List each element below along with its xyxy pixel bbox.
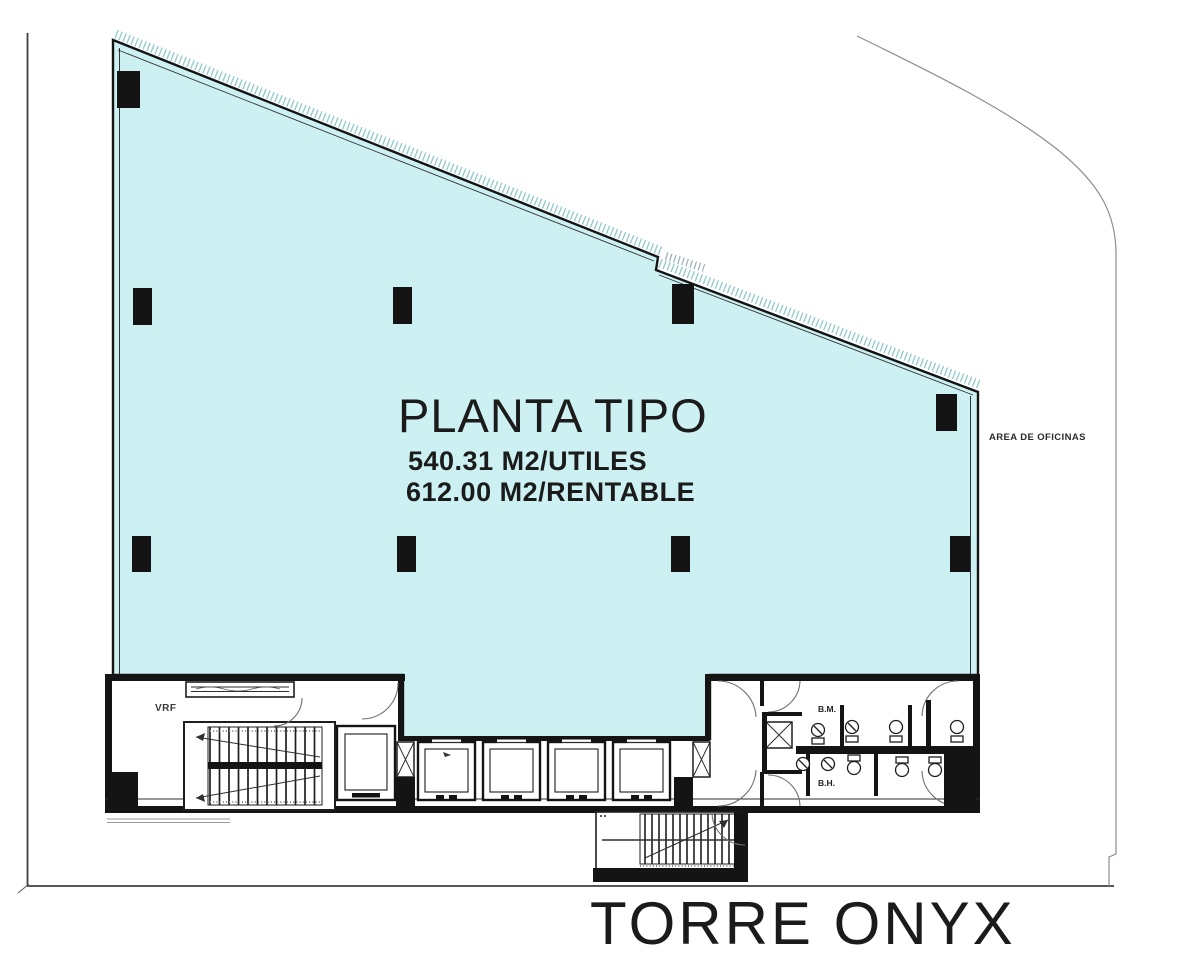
stall-partition [926,700,931,746]
door-swing [768,681,800,712]
core-column [108,772,138,813]
passenger-elevator-4 [613,740,670,801]
chase-wall [762,712,767,774]
service-shaft-solid [944,752,976,810]
toilet [848,762,861,775]
facade-hatch-notch [666,256,704,268]
door-mark [436,795,444,800]
elevator-car [345,734,387,790]
toilet [951,721,964,734]
toilet-tank [812,738,824,744]
stair-wall-right [734,812,748,882]
floor-plan-drawing: VRF [0,0,1200,972]
column [671,536,690,572]
vestibule-wall-upper [760,674,764,706]
lobby-wall-left [398,674,403,740]
toilet-tank [846,736,858,742]
elevator-door [352,793,380,798]
core-wall-top-right [707,674,980,681]
door-mark [501,795,509,800]
vestibule-wall-lower [760,772,764,812]
door-mark [449,795,457,800]
elevator-car [555,749,598,792]
plan-title: PLANTA TIPO [398,389,708,442]
lower-stair [593,812,748,882]
toilet [896,764,909,777]
column [393,287,412,324]
passenger-elevator-3 [548,740,605,801]
vrf-room: VRF [155,682,294,714]
duct-shaft-left [397,742,414,777]
toilet [890,721,903,734]
elevator-car [620,749,663,792]
column [132,536,151,572]
main-stair [184,698,335,810]
chase-wall-top [762,712,802,716]
bathroom-zone: B.M. B.H. [718,674,976,812]
toilet-tank [848,755,860,761]
plan-area-rentable: 612.00 M2/RENTABLE [406,477,695,507]
office-area-note: AREA DE OFICINAS [989,432,1086,443]
floor-plate [113,34,981,739]
stair-landing-wall [208,762,322,769]
column [133,288,152,325]
door-swing [718,681,756,717]
door-swing [362,683,398,719]
lot-corner-tick [18,884,29,893]
door-mark [579,795,587,800]
column [397,536,416,572]
column [672,284,694,324]
column [950,536,970,572]
tower-name: TORRE ONYX [590,890,1016,957]
bathroom-men-label: B.M. [818,704,836,714]
stair-wall-bottom [593,868,748,882]
column [117,71,140,108]
toilet-tank [951,736,963,742]
louver [186,682,294,697]
stall-partition [874,754,878,796]
door-mark [644,795,652,800]
floor-plan-sheet: VRF [0,0,1200,972]
door-mark [566,795,574,800]
door-mark [514,795,522,800]
service-elevator [337,726,395,800]
core-wall-top-left [105,674,405,681]
toilet-tank [890,736,902,742]
passenger-elevator-1 [418,740,475,801]
bathroom-women-label: B.H. [818,778,835,788]
column [936,394,957,431]
door-mark [631,795,639,800]
toilet-tank [896,757,908,763]
door-swing [768,775,800,806]
duct-shaft-right [693,742,710,777]
lobby-wall-right [705,674,710,740]
elevator-car [490,749,533,792]
door-swing [718,770,756,806]
chase-wall-bottom [762,770,802,774]
toilet-tank [929,757,941,763]
core-column [396,777,415,813]
passenger-elevator-2 [483,740,540,801]
stall-partition [840,705,844,746]
plan-area-useful: 540.31 M2/UTILES [408,446,647,476]
toilet [929,764,942,777]
stall-partition [908,705,912,746]
vrf-label: VRF [155,703,177,714]
core-column [674,777,693,813]
